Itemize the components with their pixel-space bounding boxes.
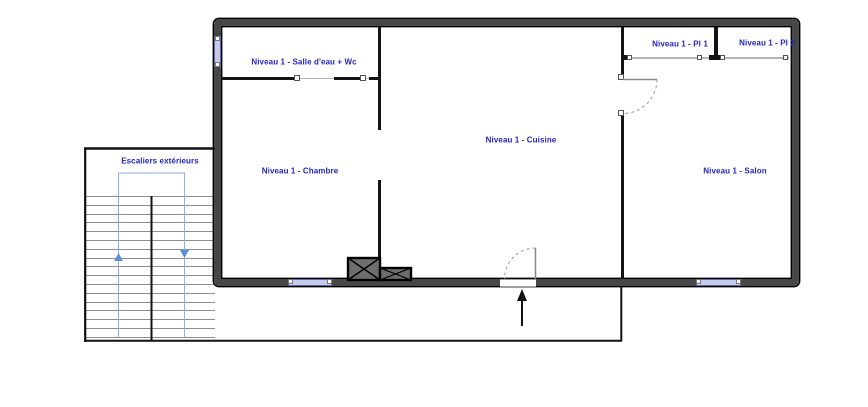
stair-tread — [86, 196, 215, 197]
door-handle — [627, 55, 632, 60]
placard-center-post — [709, 55, 720, 60]
door-handle — [720, 55, 725, 60]
room-label-cuisine: Niveau 1 - Cuisine — [486, 136, 557, 145]
door-handle — [618, 110, 624, 116]
room-label-placard-1: Niveau 1 - Pl 1 — [652, 40, 708, 49]
window-end — [327, 279, 332, 284]
stair-tread — [86, 266, 215, 267]
door-handle — [618, 74, 624, 80]
door-handle — [783, 55, 788, 60]
cuisine-salon-wall-upper — [621, 27, 624, 78]
stair-tread — [86, 205, 215, 206]
floor-plan: Niveau 1 - Salle d'eau + Wc Niveau 1 - C… — [0, 0, 868, 407]
stair-tread — [86, 249, 215, 250]
stair-guide-line — [119, 173, 185, 338]
entrance-arrow-head-icon — [517, 289, 527, 301]
stair-tread — [86, 310, 215, 311]
bathroom-wall-segment — [221, 77, 297, 80]
salon-bottom-window — [696, 279, 741, 286]
window-end — [696, 279, 701, 284]
stair-tread — [86, 231, 215, 232]
placard-divider-wall — [714, 27, 718, 58]
chambre-cuisine-wall-lower — [378, 180, 381, 272]
window-end — [215, 62, 220, 67]
window-end — [288, 279, 293, 284]
stair-tread — [86, 240, 215, 241]
chambre-left-window — [214, 36, 221, 67]
door-handle — [697, 55, 702, 60]
chambre-cuisine-wall-upper — [378, 27, 381, 130]
door-handle — [360, 75, 366, 81]
stair-tread — [86, 328, 215, 329]
chambre-bottom-window — [288, 279, 332, 286]
stair-tread — [86, 302, 215, 303]
stair-tread — [86, 319, 215, 320]
stair-tread — [86, 284, 215, 285]
door-handle — [294, 75, 300, 81]
placard2-sliding-door — [718, 57, 789, 59]
entrance-door-opening — [500, 279, 536, 287]
window-end — [215, 36, 220, 41]
stair-tread — [86, 222, 215, 223]
stair-tread — [86, 258, 215, 259]
stair-tread — [86, 293, 215, 294]
room-label-chambre: Niveau 1 - Chambre — [262, 167, 339, 176]
cuisine-salon-wall-lower — [621, 114, 624, 279]
room-label-salon: Niveau 1 - Salon — [703, 167, 766, 176]
stair-tread — [86, 214, 215, 215]
bathroom-sliding-door-panel — [334, 77, 363, 80]
window-end — [736, 279, 741, 284]
room-label-placard-2: Niveau 1 - Pl 2 — [739, 39, 795, 48]
stair-tread — [86, 337, 215, 338]
stairs-label: Escaliers extérieurs — [121, 157, 199, 166]
room-label-salle-eau: Niveau 1 - Salle d'eau + Wc — [251, 58, 356, 67]
stair-tread — [86, 275, 215, 276]
